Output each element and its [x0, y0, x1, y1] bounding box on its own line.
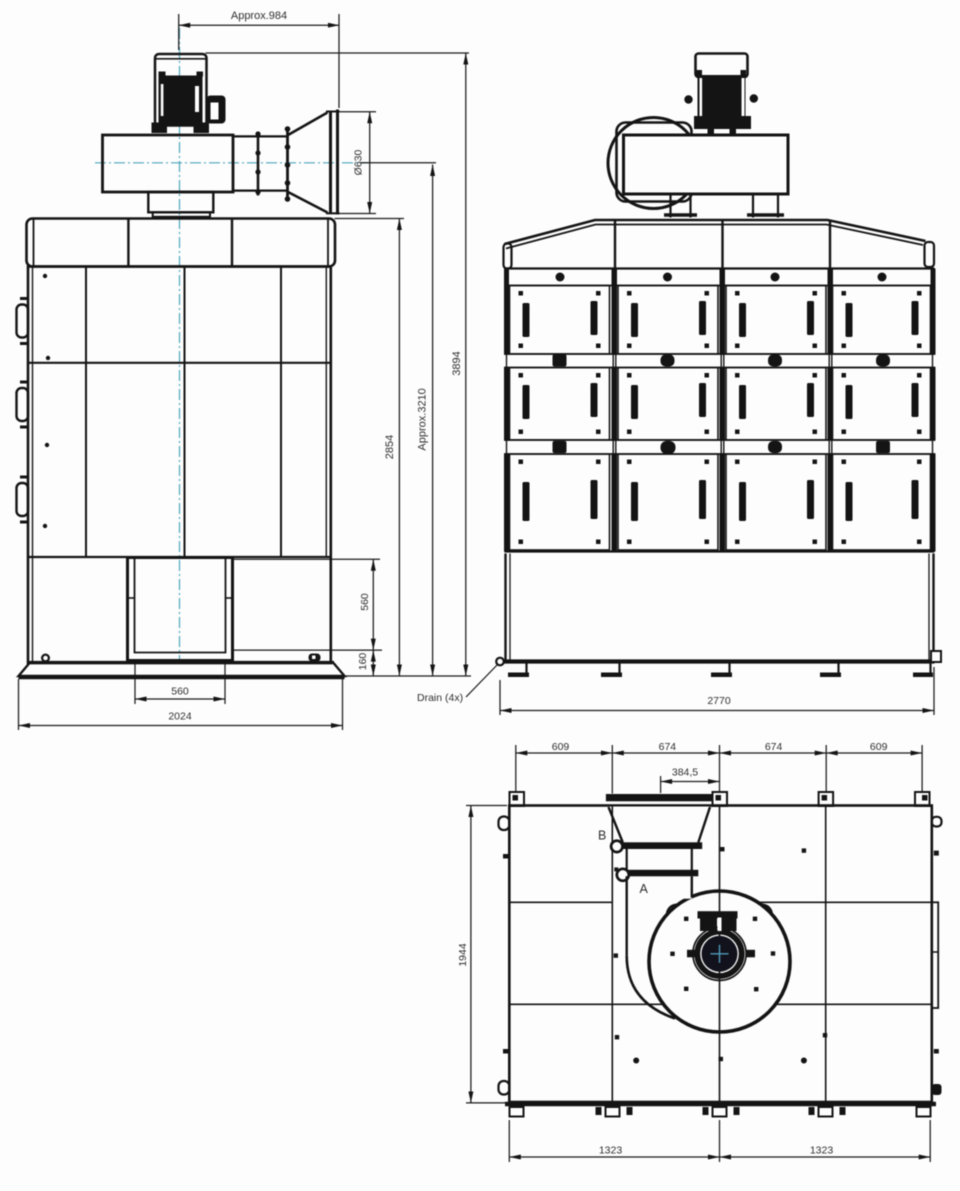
svg-text:Drain (4x): Drain (4x) — [417, 692, 463, 704]
svg-text:560: 560 — [359, 593, 371, 611]
svg-text:3894: 3894 — [451, 351, 463, 375]
svg-text:B: B — [598, 829, 606, 843]
svg-text:1323: 1323 — [599, 1145, 623, 1157]
svg-text:Ø630: Ø630 — [353, 149, 365, 175]
svg-text:384,5: 384,5 — [672, 767, 698, 779]
svg-text:160: 160 — [357, 653, 369, 671]
svg-text:2854: 2854 — [384, 435, 396, 459]
svg-text:560: 560 — [171, 686, 189, 698]
svg-text:609: 609 — [552, 741, 570, 753]
svg-text:Approx.984: Approx.984 — [231, 10, 287, 22]
svg-text:Approx.3210: Approx.3210 — [417, 388, 429, 450]
svg-text:674: 674 — [659, 741, 677, 753]
svg-text:2770: 2770 — [707, 695, 731, 707]
svg-text:2024: 2024 — [168, 711, 192, 723]
svg-text:1944: 1944 — [457, 943, 469, 967]
svg-text:1323: 1323 — [810, 1145, 834, 1157]
svg-text:A: A — [640, 882, 649, 896]
svg-text:609: 609 — [870, 741, 888, 753]
svg-text:674: 674 — [765, 741, 783, 753]
